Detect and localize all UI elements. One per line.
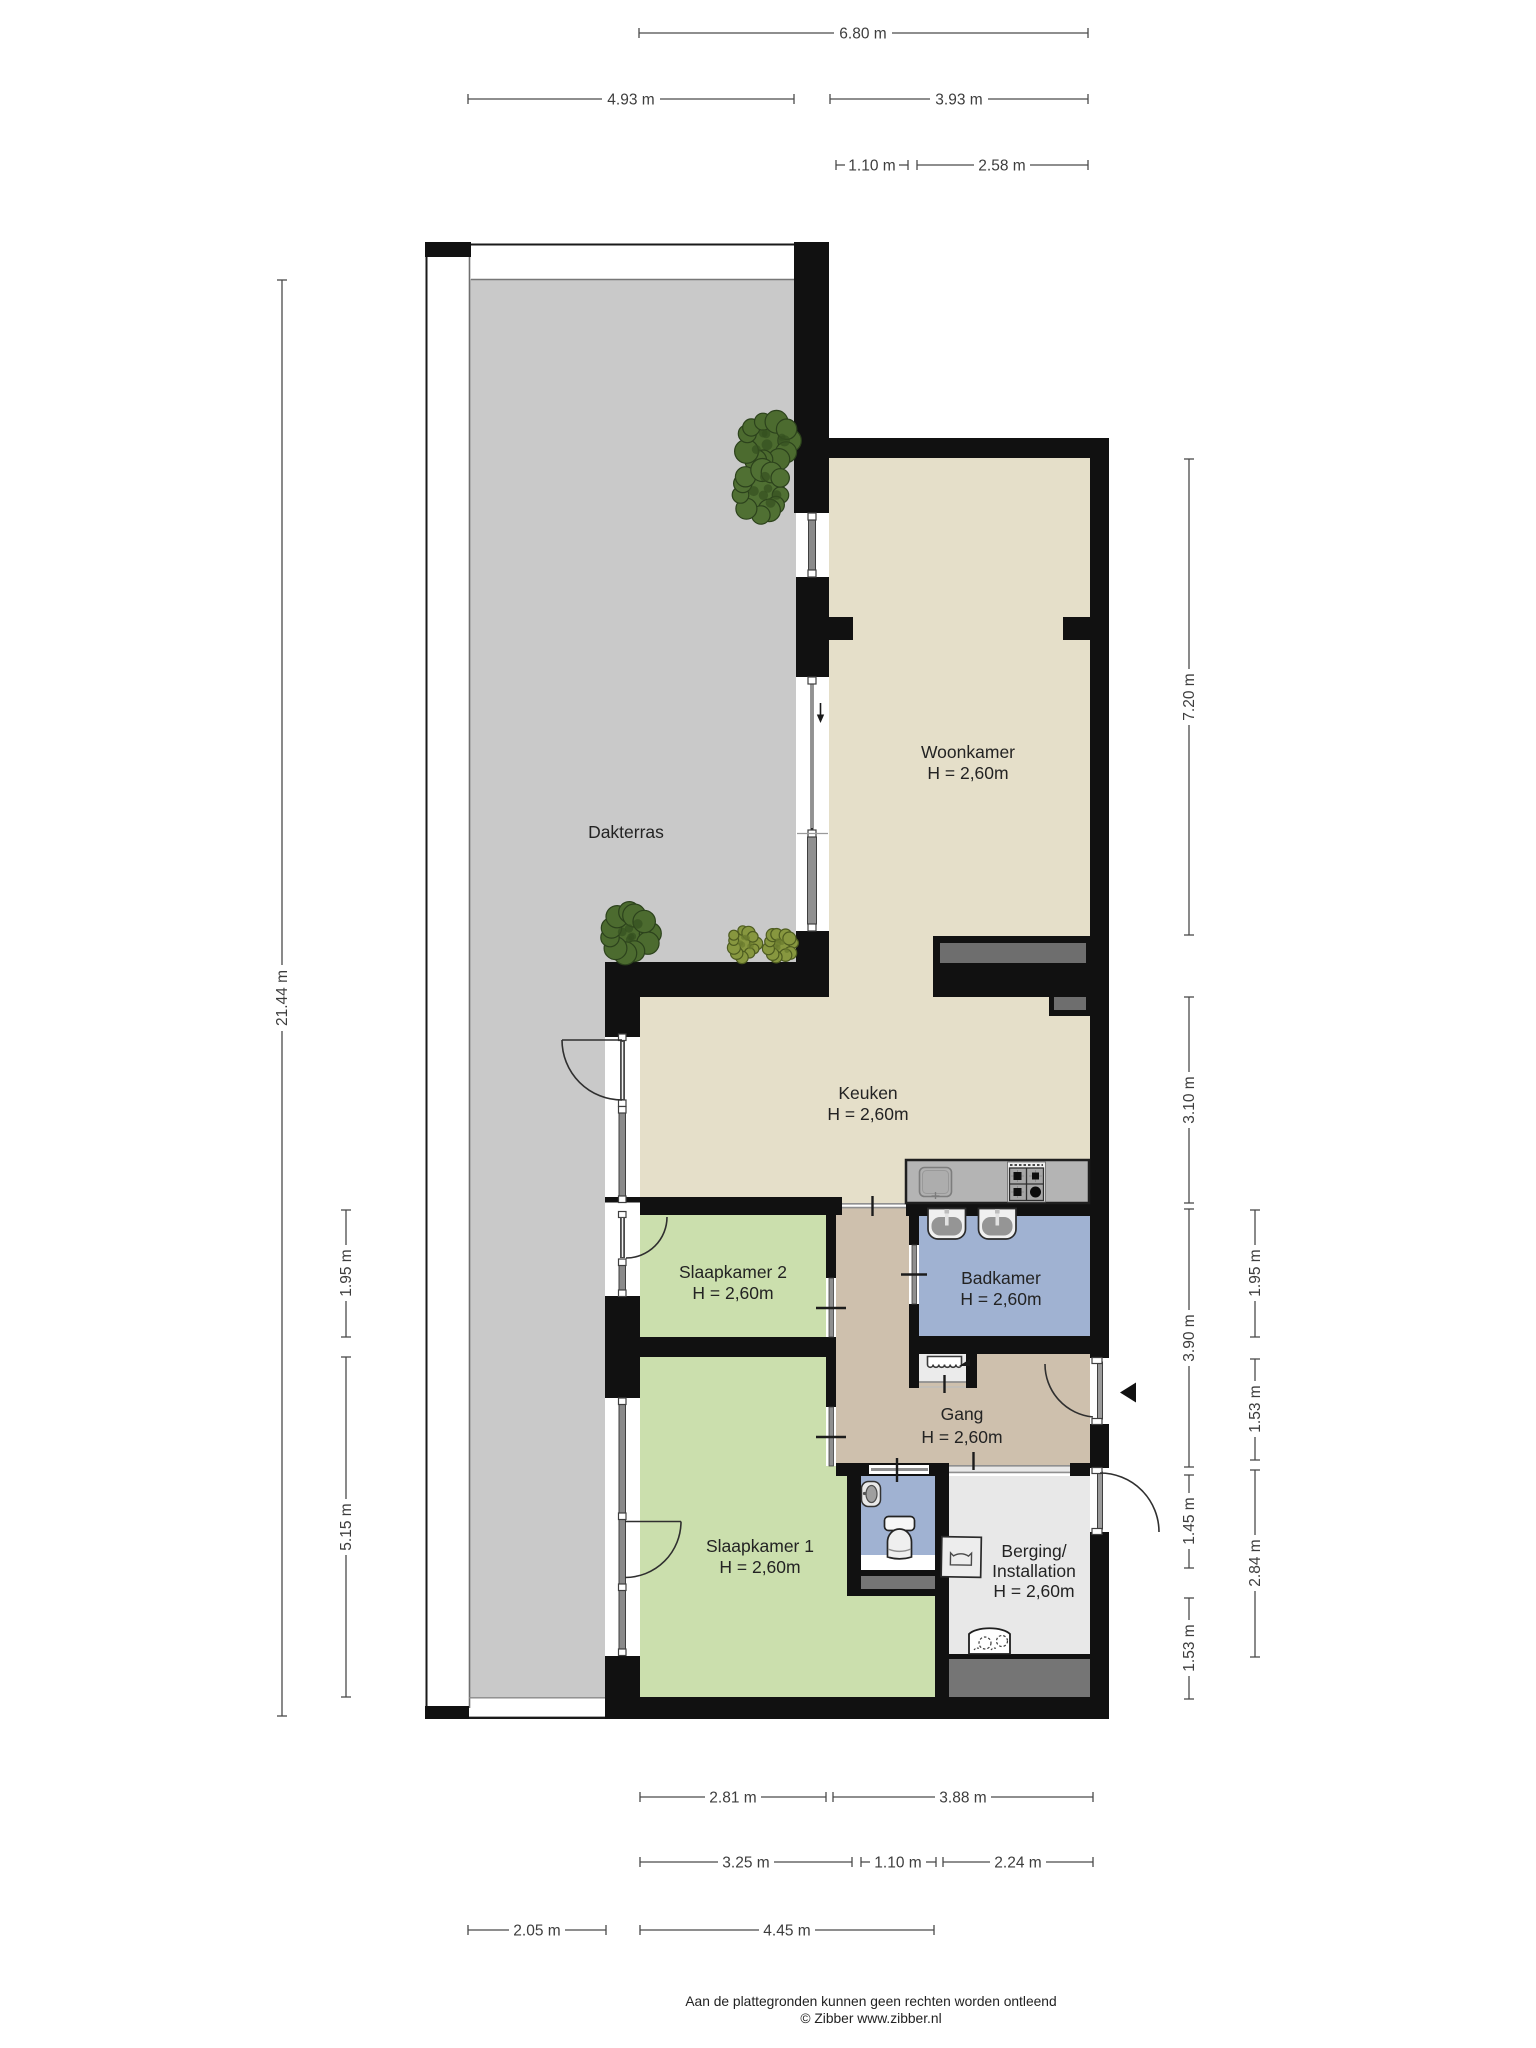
svg-text:3.88 m: 3.88 m — [939, 1790, 986, 1807]
svg-text:1.10 m: 1.10 m — [848, 158, 895, 175]
svg-text:Woonkamer: Woonkamer — [921, 742, 1015, 762]
svg-text:1.45 m: 1.45 m — [1181, 1497, 1198, 1544]
svg-text:H = 2,60m: H = 2,60m — [960, 1289, 1041, 1309]
svg-text:© Zibber www.zibber.nl: © Zibber www.zibber.nl — [800, 2011, 941, 2026]
svg-text:H = 2,60m: H = 2,60m — [921, 1427, 1002, 1447]
svg-text:1.10 m: 1.10 m — [874, 1855, 921, 1872]
svg-text:1.53 m: 1.53 m — [1247, 1385, 1264, 1432]
svg-text:2.05 m: 2.05 m — [513, 1923, 560, 1940]
svg-text:Keuken: Keuken — [838, 1083, 897, 1103]
svg-text:Slaapkamer 2: Slaapkamer 2 — [679, 1262, 787, 1282]
svg-text:1.95 m: 1.95 m — [338, 1249, 355, 1296]
svg-text:Slaapkamer 1: Slaapkamer 1 — [706, 1536, 814, 1556]
svg-text:3.93 m: 3.93 m — [935, 92, 982, 109]
svg-text:Gang: Gang — [941, 1404, 984, 1424]
svg-text:2.81 m: 2.81 m — [709, 1790, 756, 1807]
svg-text:5.15 m: 5.15 m — [338, 1503, 355, 1550]
svg-text:Dakterras: Dakterras — [588, 822, 664, 842]
svg-text:6.80 m: 6.80 m — [839, 26, 886, 43]
svg-text:H = 2,60m: H = 2,60m — [927, 763, 1008, 783]
svg-text:7.20 m: 7.20 m — [1181, 673, 1198, 720]
svg-text:H = 2,60m: H = 2,60m — [827, 1104, 908, 1124]
svg-text:1.53 m: 1.53 m — [1181, 1624, 1198, 1671]
svg-text:21.44 m: 21.44 m — [274, 970, 291, 1026]
svg-text:2.58 m: 2.58 m — [978, 158, 1025, 175]
svg-text:Badkamer: Badkamer — [961, 1268, 1041, 1288]
svg-text:3.25 m: 3.25 m — [722, 1855, 769, 1872]
svg-text:H = 2,60m: H = 2,60m — [719, 1557, 800, 1577]
svg-text:2.84 m: 2.84 m — [1247, 1539, 1264, 1586]
svg-text:H = 2,60m: H = 2,60m — [993, 1581, 1074, 1601]
svg-text:Installation: Installation — [992, 1561, 1076, 1581]
svg-text:3.10 m: 3.10 m — [1181, 1076, 1198, 1123]
svg-text:Aan de plattegronden kunnen ge: Aan de plattegronden kunnen geen rechten… — [685, 1994, 1056, 2009]
svg-text:3.90 m: 3.90 m — [1181, 1314, 1198, 1361]
svg-text:1.95 m: 1.95 m — [1247, 1249, 1264, 1296]
svg-text:4.93 m: 4.93 m — [607, 92, 654, 109]
svg-text:4.45 m: 4.45 m — [763, 1923, 810, 1940]
svg-text:2.24 m: 2.24 m — [994, 1855, 1041, 1872]
svg-text:H = 2,60m: H = 2,60m — [692, 1283, 773, 1303]
svg-text:Berging/: Berging/ — [1001, 1541, 1066, 1561]
